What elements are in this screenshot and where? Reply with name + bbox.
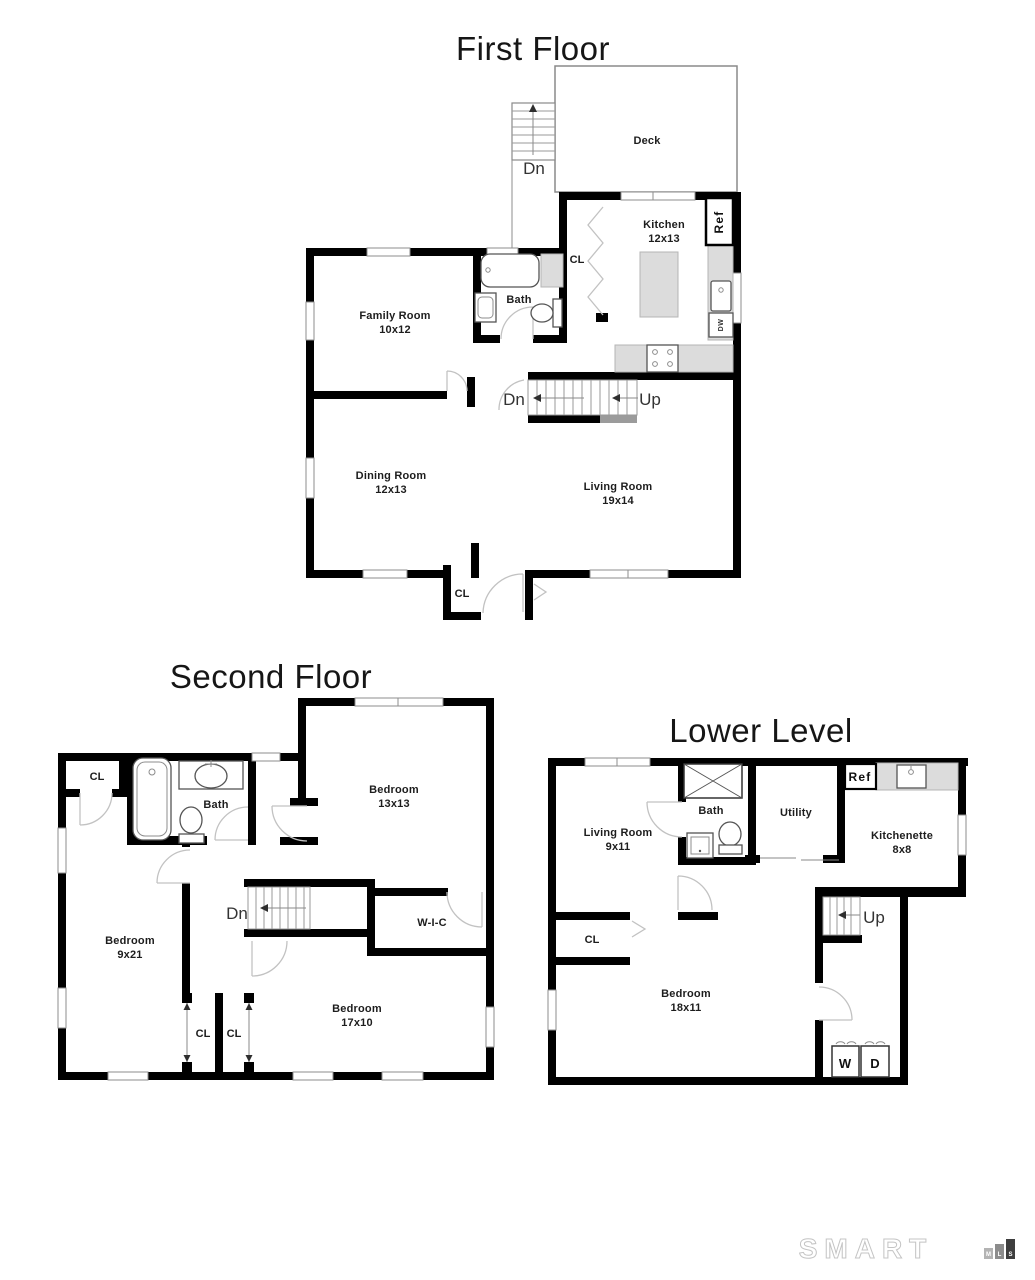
- sink-icon: [195, 764, 227, 788]
- entry-closet-bifold-icon: [534, 584, 546, 600]
- kitchenette-dims: 8x8: [893, 844, 912, 856]
- kitchenette-label: Kitchenette: [871, 830, 933, 842]
- bath-label: Bath: [203, 799, 228, 811]
- bath-label: Bath: [506, 294, 531, 306]
- stairs-up-label: Up: [639, 390, 661, 409]
- family-room-dims: 10x12: [379, 324, 411, 336]
- floor-plan-canvas: First Floor Deck Dn: [0, 0, 1035, 1280]
- family-room-label: Family Room: [359, 310, 430, 322]
- washer-label: W: [839, 1056, 852, 1071]
- kitchen-dims: 12x13: [648, 233, 680, 245]
- kitchen-closet-bifold-icon: [588, 207, 603, 315]
- toilet-icon: [553, 299, 562, 327]
- walk-in-closet-label: W-I-C: [417, 917, 447, 929]
- stairs-up-label: Up: [863, 908, 885, 927]
- lower-level-plan: Lower Level Up: [548, 712, 968, 1085]
- ll-bedroom-dims: 18x11: [671, 1002, 702, 1014]
- deck: Deck Dn: [512, 66, 737, 248]
- kitchen-sink-icon: [711, 281, 731, 311]
- kitchen-closet-label: CL: [570, 254, 585, 266]
- dryer-label: D: [870, 1056, 879, 1071]
- stair-divider: [600, 415, 637, 423]
- stairs-down-label: Dn: [226, 904, 248, 923]
- closet-right-label: CL: [227, 1028, 242, 1040]
- bedroom2-label: Bedroom: [105, 935, 155, 947]
- living-room-label: Living Room: [584, 481, 653, 493]
- kitchenette-fixtures: Ref: [845, 763, 958, 790]
- stairs-down-label: Dn: [503, 390, 525, 409]
- second-floor-plan: Second Floor Dn: [58, 658, 494, 1080]
- living-room-dims: 19x14: [602, 495, 634, 507]
- shower-icon: [684, 764, 742, 798]
- lower-level-walls: [548, 758, 968, 1085]
- dryer-icon: D: [861, 1042, 889, 1077]
- stairs-up-arrow-icon: [838, 911, 846, 919]
- entry-closet-label: CL: [455, 588, 470, 600]
- deck-label: Deck: [633, 135, 661, 147]
- refrigerator-label: Ref: [849, 770, 872, 784]
- bedroom1-label: Bedroom: [369, 784, 419, 796]
- deck-stairs-down-label: Dn: [523, 159, 545, 178]
- kitchen-island: [640, 252, 678, 317]
- lower-level-title: Lower Level: [669, 712, 852, 749]
- smartmls-wordmark: SMART: [799, 1233, 934, 1264]
- ll-living-room-label: Living Room: [584, 827, 653, 839]
- mls-letter-s: S: [1008, 1252, 1012, 1258]
- closet-bifold-icon: [632, 921, 645, 937]
- ll-bedroom-label: Bedroom: [661, 988, 711, 1000]
- linen-shelf: [541, 254, 563, 287]
- bedroom1-dims: 13x13: [378, 798, 410, 810]
- first-floor-title: First Floor: [456, 30, 610, 67]
- floor-plan-sheet: First Floor Deck Dn: [0, 0, 1035, 1280]
- first-floor-plan: First Floor Deck Dn: [306, 30, 741, 620]
- closet-left-label: CL: [196, 1028, 211, 1040]
- bedroom3-label: Bedroom: [332, 1003, 382, 1015]
- refrigerator-label: Ref: [712, 211, 726, 234]
- toilet-icon: [719, 822, 741, 846]
- ll-living-room-dims: 9x11: [606, 841, 631, 853]
- laundry-fixtures: W D: [832, 1042, 889, 1077]
- second-floor-stairs: Dn: [226, 887, 310, 929]
- washer-icon: W: [832, 1042, 859, 1077]
- stairs-up-arrow-icon: [612, 394, 620, 402]
- ll-bath-label: Bath: [698, 805, 723, 817]
- ll-closet-label: CL: [585, 934, 600, 946]
- second-floor-title: Second Floor: [170, 658, 372, 695]
- lower-level-stairs: Up: [823, 897, 885, 935]
- dishwasher-label: DW: [718, 319, 725, 332]
- first-floor-bath-fixtures: [475, 254, 563, 327]
- bedroom3-dims: 17x10: [341, 1017, 373, 1029]
- bedroom2-dims: 9x21: [117, 949, 142, 961]
- toilet-icon: [180, 807, 202, 833]
- mls-letter-m: M: [986, 1252, 991, 1258]
- first-floor-stairs: Dn Up: [503, 380, 661, 415]
- bathtub-icon: [133, 758, 171, 840]
- smartmls-logo: SMART M L S: [799, 1233, 1015, 1264]
- hall-closet-label: CL: [90, 771, 105, 783]
- dining-room-label: Dining Room: [356, 470, 427, 482]
- slider-door: [621, 192, 695, 200]
- utility-label: Utility: [780, 807, 813, 819]
- mls-letter-l: L: [998, 1252, 1002, 1258]
- stove-icon: [647, 345, 678, 372]
- dining-room-dims: 12x13: [375, 484, 407, 496]
- kitchen-label: Kitchen: [643, 219, 685, 231]
